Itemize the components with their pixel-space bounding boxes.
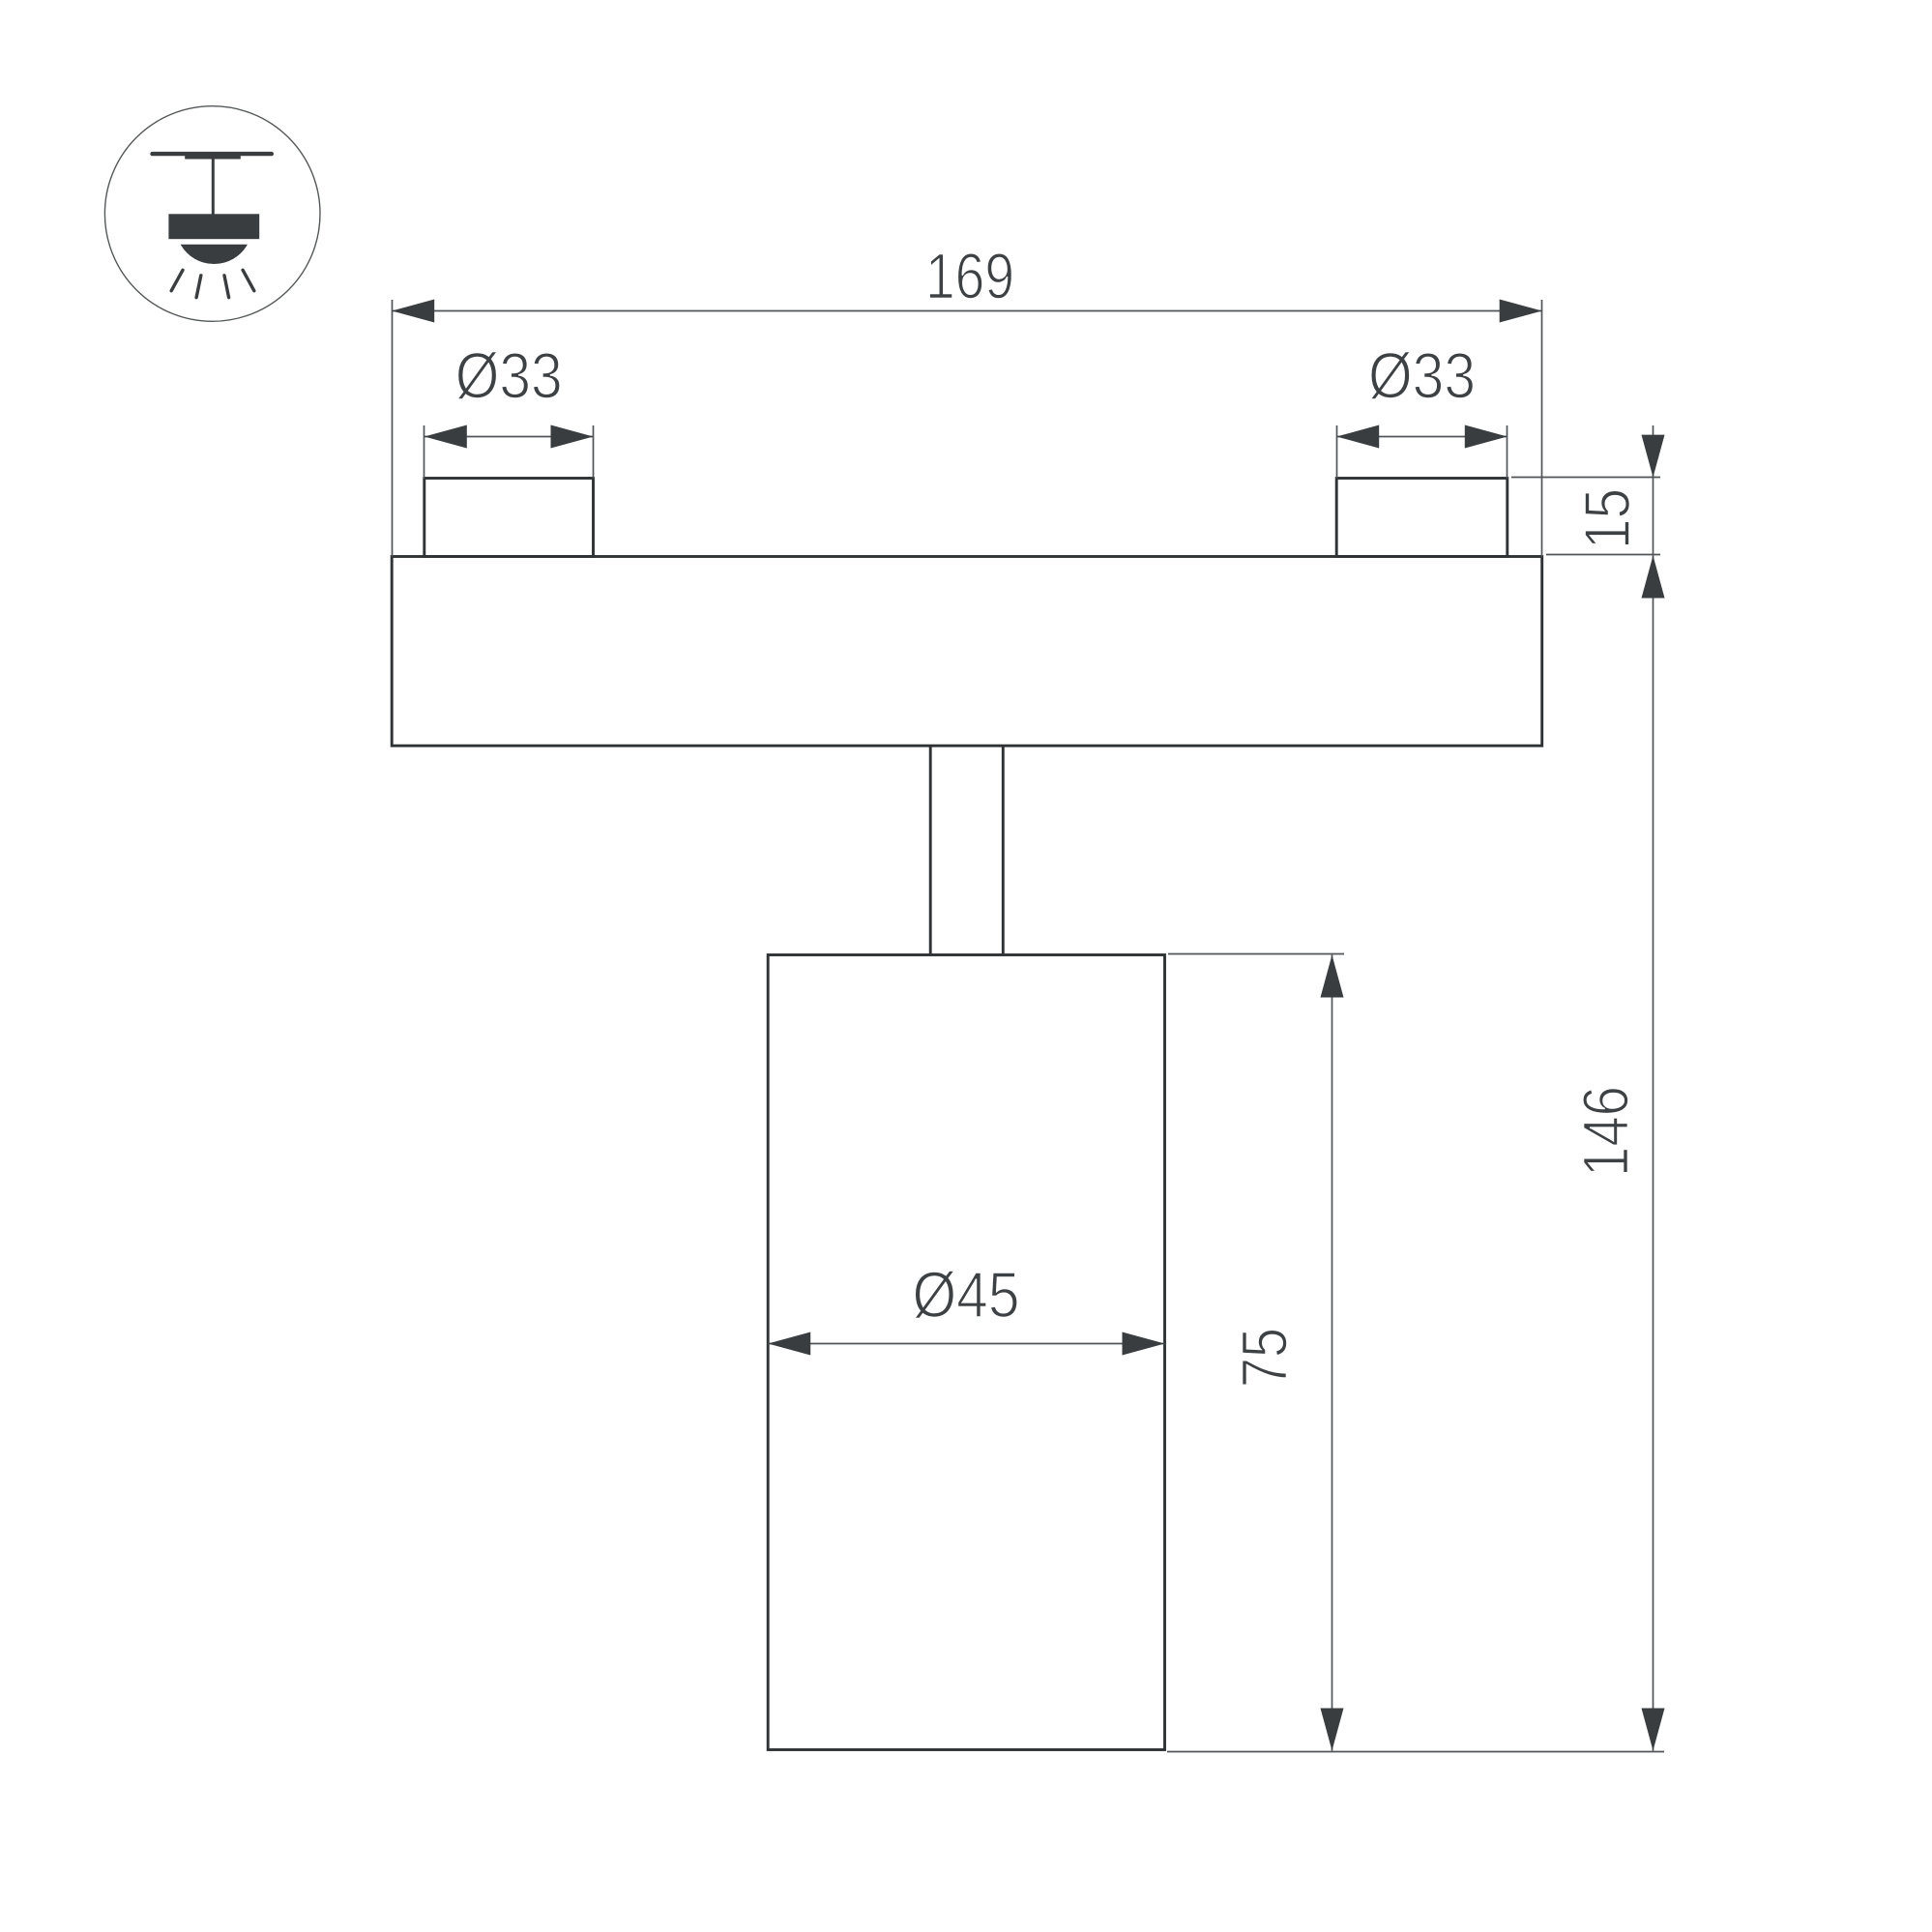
svg-text:75: 75: [1229, 1328, 1302, 1388]
svg-text:169: 169: [925, 241, 1014, 313]
svg-text:Ø33: Ø33: [1368, 340, 1476, 413]
svg-text:Ø45: Ø45: [913, 1259, 1020, 1332]
svg-text:146: 146: [1570, 1086, 1643, 1177]
svg-text:Ø33: Ø33: [455, 340, 563, 413]
svg-text:15: 15: [1571, 488, 1644, 549]
